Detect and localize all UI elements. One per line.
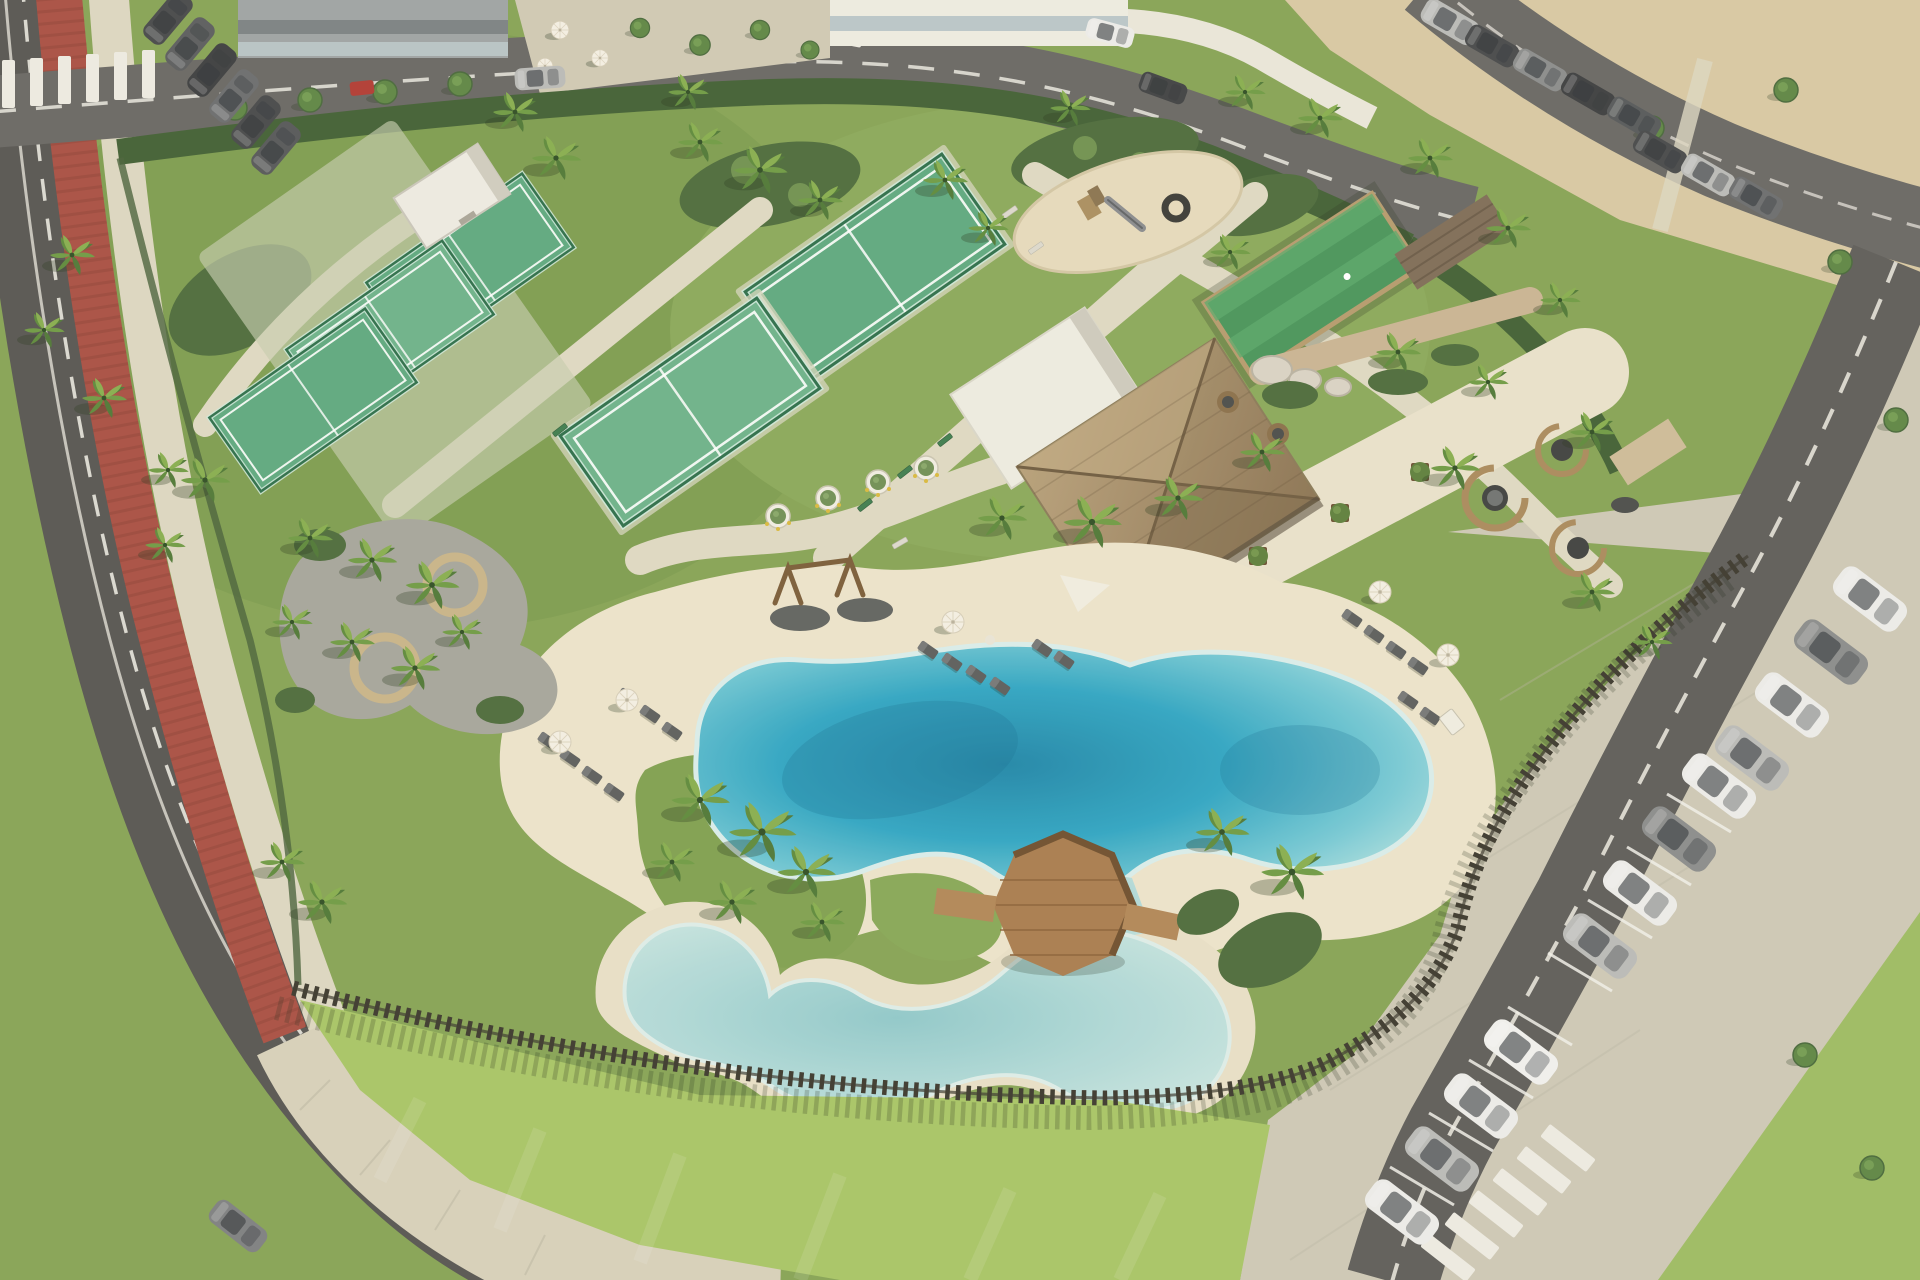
aerial-photo: Aerial view of a beachfront resort ameni… bbox=[0, 0, 1920, 1280]
light-overlay bbox=[0, 0, 1920, 1280]
